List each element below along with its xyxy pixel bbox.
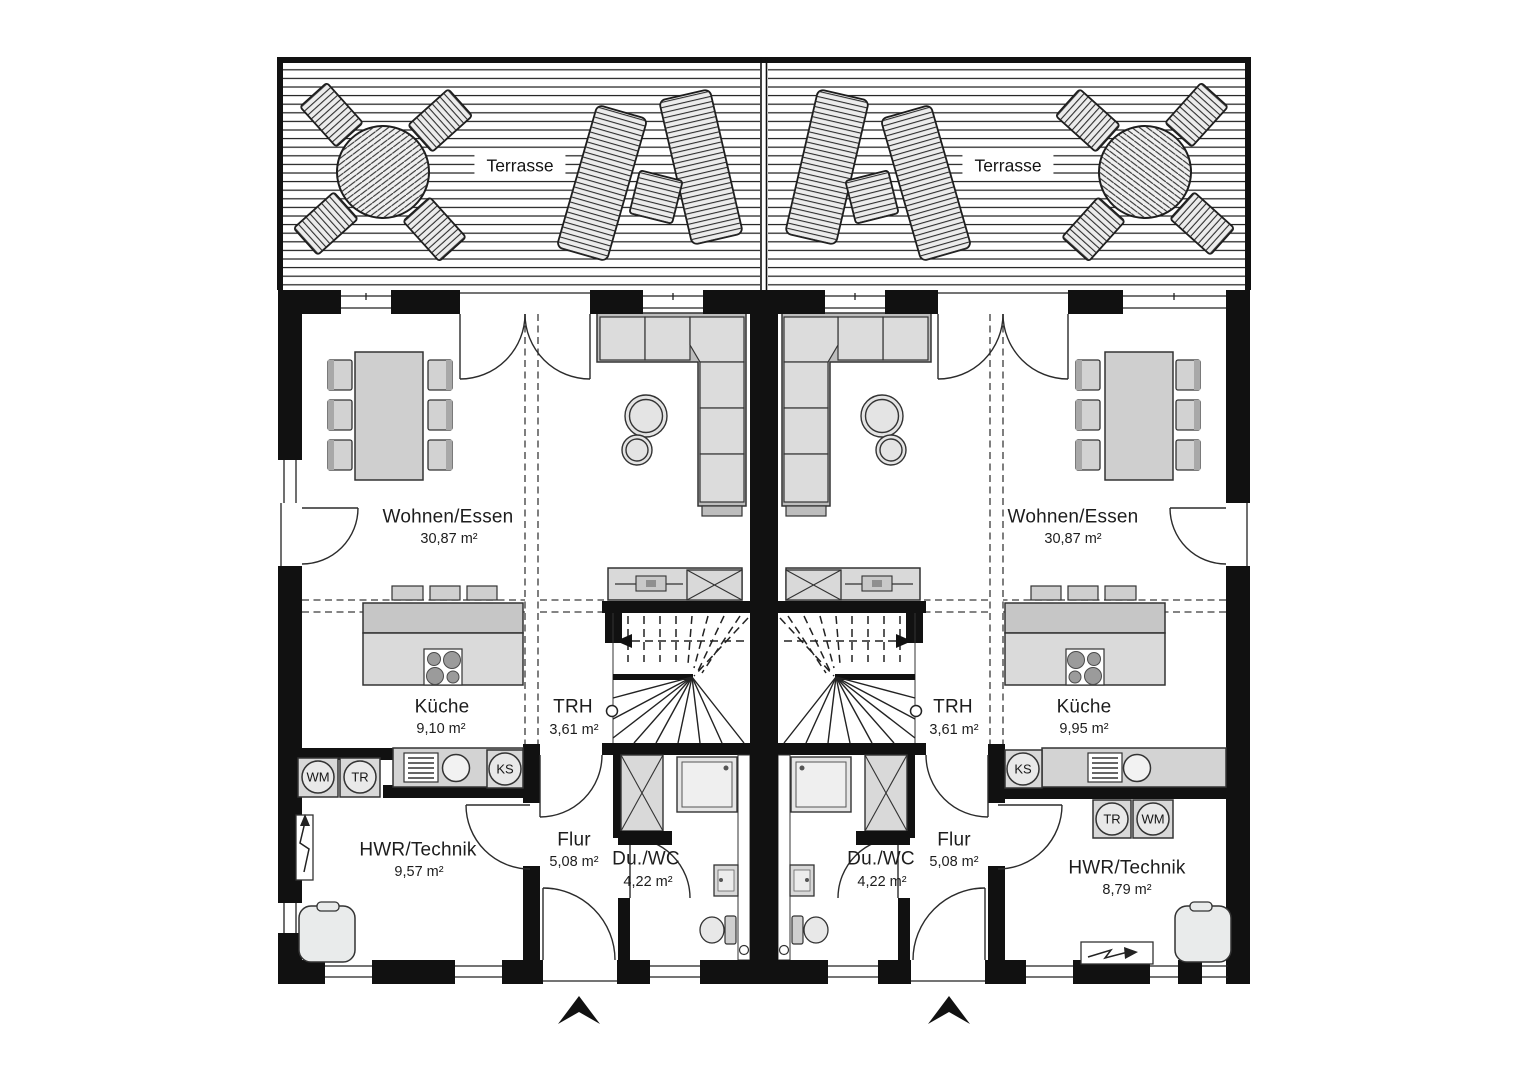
room-label-kueche-right: Küche [1057,698,1112,717]
top-wall [278,290,1250,314]
room-area-duwc-left: 4,22 m² [623,875,672,890]
water-heater-right [1175,906,1231,962]
room-area-kueche-right: 9,95 m² [1059,722,1108,737]
room-area-flur-left: 5,08 m² [549,855,598,870]
room-area-hwr-left: 9,57 m² [394,865,443,880]
entrance-arrow-left [558,996,600,1024]
appliance-label-wm-left: WM [306,771,329,784]
terrace-label-left: Terrasse [474,153,565,179]
water-heater-left [299,906,355,962]
terrace-divider [760,57,768,290]
appliance-label-ks-right: KS [1014,763,1031,776]
unit-left [277,57,764,960]
kitchen-row-left [298,748,523,798]
room-area-trh-left: 3,61 m² [549,723,598,738]
room-label-wohnen-left: Wohnen/Essen [383,508,514,527]
room-area-trh-right: 3,61 m² [929,723,978,738]
party-wall [750,290,778,984]
room-area-wohnen-right: 30,87 m² [1044,532,1101,547]
room-label-hwr-right: HWR/Technik [1068,859,1185,878]
room-area-flur-right: 5,08 m² [929,855,978,870]
room-label-duwc-left: Du./WC [612,850,680,869]
room-label-hwr-left: HWR/Technik [359,841,476,860]
entrance-arrow-right [928,996,970,1024]
room-area-duwc-right: 4,22 m² [857,875,906,890]
appliance-label-ks-left: KS [496,763,513,776]
room-area-wohnen-left: 30,87 m² [420,532,477,547]
room-label-flur-right: Flur [937,831,971,850]
room-label-flur-left: Flur [557,831,591,850]
room-label-trh-right: TRH [933,698,973,717]
room-label-duwc-right: Du./WC [847,850,915,869]
room-label-wohnen-right: Wohnen/Essen [1008,508,1139,527]
room-area-kueche-left: 9,10 m² [416,722,465,737]
hwr-equipment-left [296,814,355,962]
right-wall [1226,290,1250,984]
floor-plan: Terrasse Terrasse Wohnen/Essen 30,87 m² … [0,0,1527,1080]
floorplan-drawing [0,0,1527,1080]
appliance-label-tr-left: TR [351,771,368,784]
room-label-kueche-left: Küche [415,698,470,717]
appliance-label-wm-right: WM [1141,813,1164,826]
appliance-label-tr-right: TR [1103,813,1120,826]
room-area-hwr-right: 8,79 m² [1102,883,1151,898]
hwr-equipment-right [1081,902,1231,964]
room-label-trh-left: TRH [553,698,593,717]
terrace-label-right: Terrasse [962,153,1053,179]
